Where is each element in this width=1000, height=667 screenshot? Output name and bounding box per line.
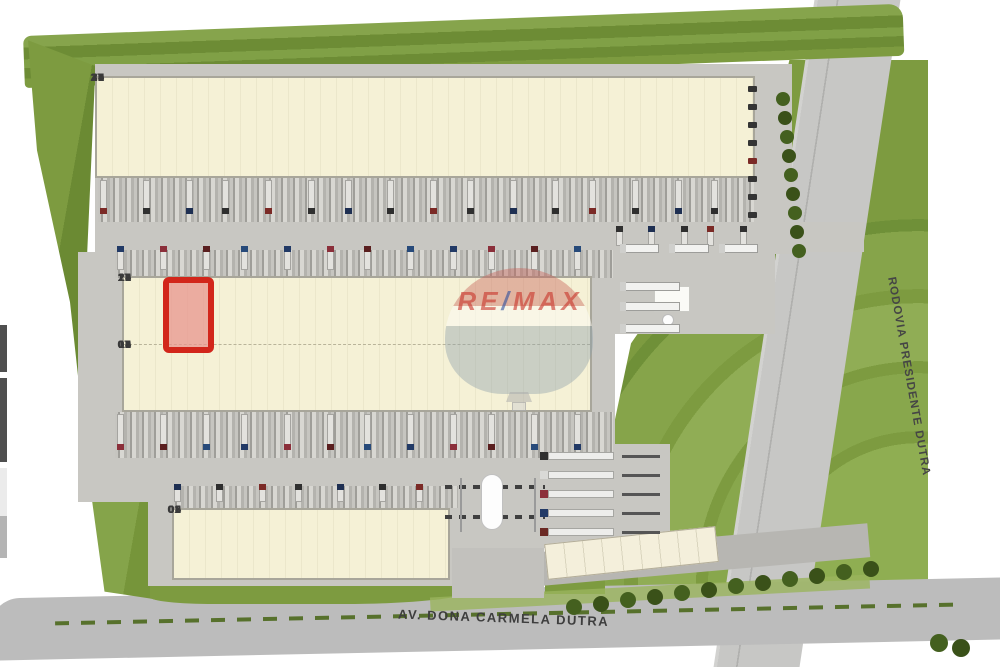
truck-cab: [675, 208, 682, 214]
truck-cab: [284, 246, 291, 252]
truck-cab: [540, 490, 548, 498]
truck: [620, 324, 680, 333]
truck: [620, 302, 680, 311]
truck: [616, 226, 623, 246]
remax-wordmark-max: MAX: [513, 286, 583, 316]
truck: [337, 484, 344, 502]
truck-cab: [620, 302, 626, 311]
left-edge-bar: [0, 516, 7, 558]
truck-cab: [616, 226, 623, 232]
left-edge-bar: [0, 468, 7, 516]
truck-cab: [143, 208, 150, 214]
truck-cab: [648, 226, 655, 232]
truck-cab: [620, 324, 626, 333]
truck-cab: [574, 444, 581, 450]
truck-cab: [379, 484, 386, 490]
truck-cab: [407, 246, 414, 252]
truck: [387, 180, 394, 214]
parking-marking: [622, 455, 660, 458]
truck-cab: [540, 528, 548, 536]
truck-cab: [552, 208, 559, 214]
truck-cab: [488, 246, 495, 252]
tree-icon: [863, 561, 879, 577]
truck: [222, 180, 229, 214]
tree-icon: [593, 596, 609, 612]
truck: [416, 484, 423, 502]
truck-cab: [364, 246, 371, 252]
car: [748, 86, 757, 92]
truck-cab: [574, 246, 581, 252]
truck-cab: [707, 226, 714, 232]
tree-icon: [620, 592, 636, 608]
truck-cab: [265, 208, 272, 214]
tree-icon: [809, 568, 825, 584]
truck: [100, 180, 107, 214]
truck-cab: [327, 444, 334, 450]
tree-icon: [792, 244, 806, 258]
truck: [117, 246, 124, 270]
remax-balloon-basket: [512, 402, 526, 411]
truck-cab: [632, 208, 639, 214]
truck-cab: [430, 208, 437, 214]
truck-cab: [203, 246, 210, 252]
truck: [216, 484, 223, 502]
truck: [467, 180, 474, 214]
tree-icon: [782, 571, 798, 587]
remax-watermark: RE/MAX: [442, 262, 598, 420]
truck: [364, 414, 371, 450]
truck-cab: [488, 444, 495, 450]
truck-cab: [540, 452, 548, 460]
truck: [284, 414, 291, 450]
tree-icon: [790, 225, 804, 239]
truck-cab: [589, 208, 596, 214]
parking-marking: [622, 493, 660, 496]
truck-trailer: [548, 528, 614, 536]
remax-wordmark-slash: /: [502, 286, 513, 316]
truck-cab: [174, 484, 181, 490]
truck-cab: [669, 244, 675, 253]
truck-trailer: [548, 490, 614, 498]
truck-cab: [345, 208, 352, 214]
truck: [203, 246, 210, 270]
truck-cab: [450, 246, 457, 252]
car: [748, 212, 757, 218]
truck: [510, 180, 517, 214]
parking-marking: [622, 512, 660, 515]
truck-cab: [100, 208, 107, 214]
car: [748, 122, 757, 128]
truck: [241, 246, 248, 270]
truck: [174, 484, 181, 502]
truck: [620, 244, 659, 253]
tree-icon: [788, 206, 802, 220]
tree-icon: [674, 585, 690, 601]
truck-cab: [160, 246, 167, 252]
left-edge-bar: [0, 378, 7, 462]
truck-cab: [216, 484, 223, 490]
truck-cab: [117, 444, 124, 450]
tree-icon: [786, 187, 800, 201]
truck-cab: [531, 246, 538, 252]
truck-cab: [620, 282, 626, 291]
truck-cab: [416, 484, 423, 490]
truck-cab: [222, 208, 229, 214]
truck: [707, 226, 714, 246]
truck-cab: [327, 246, 334, 252]
truck: [669, 244, 708, 253]
remax-wordmark-re: RE: [457, 286, 501, 316]
truck-trailer: [548, 509, 614, 517]
highlighted-unit-box: [163, 277, 214, 353]
tree-icon: [952, 639, 970, 657]
parking-marking: [622, 531, 660, 534]
truck: [364, 246, 371, 270]
truck-cab: [387, 208, 394, 214]
tree-icon: [755, 575, 771, 591]
site-plan-canvas: 2728293031323334353637383940 17181920212…: [0, 0, 1000, 667]
remax-balloon-neck: [506, 392, 532, 402]
truck: [308, 180, 315, 214]
truck: [265, 180, 272, 214]
truck: [284, 246, 291, 270]
truck-cab: [407, 444, 414, 450]
truck: [327, 246, 334, 270]
truck: [160, 414, 167, 450]
truck-cab: [540, 509, 548, 517]
car: [748, 140, 757, 146]
truck: [379, 484, 386, 502]
truck: [648, 226, 655, 246]
truck-cab: [203, 444, 210, 450]
truck: [711, 180, 718, 214]
truck: [740, 226, 747, 246]
truck-cab: [241, 444, 248, 450]
truck: [589, 180, 596, 214]
truck-cab: [160, 444, 167, 450]
truck-cab: [308, 208, 315, 214]
tree-icon: [778, 111, 792, 125]
truck-cab: [117, 246, 124, 252]
truck: [160, 246, 167, 270]
truck-cab: [740, 226, 747, 232]
tree-icon: [780, 130, 794, 144]
truck-cab: [186, 208, 193, 214]
truck-cab: [364, 444, 371, 450]
truck-cab: [681, 226, 688, 232]
truck: [632, 180, 639, 214]
tree-icon: [836, 564, 852, 580]
truck: [295, 484, 302, 502]
remax-wordmark: RE/MAX: [442, 286, 598, 317]
tree-icon: [930, 634, 948, 652]
truck: [407, 246, 414, 270]
truck-cab: [620, 244, 626, 253]
truck: [203, 414, 210, 450]
truck-cab: [241, 246, 248, 252]
truck: [259, 484, 266, 502]
truck-cab: [719, 244, 725, 253]
truck: [675, 180, 682, 214]
tree-icon: [647, 589, 663, 605]
truck-cab: [450, 444, 457, 450]
parking-marking: [622, 474, 660, 477]
truck: [327, 414, 334, 450]
truck-trailer: [548, 471, 614, 479]
car: [748, 158, 757, 164]
car: [748, 176, 757, 182]
truck: [681, 226, 688, 246]
car: [748, 194, 757, 200]
tree-icon: [784, 168, 798, 182]
car: [748, 104, 757, 110]
truck: [143, 180, 150, 214]
truck-cab: [259, 484, 266, 490]
truck: [186, 180, 193, 214]
truck: [345, 180, 352, 214]
tree-icon: [701, 582, 717, 598]
truck-cab: [510, 208, 517, 214]
truck: [620, 282, 680, 291]
truck-cab: [295, 484, 302, 490]
truck: [117, 414, 124, 450]
truck-cab: [467, 208, 474, 214]
truck: [241, 414, 248, 450]
truck-cab: [531, 444, 538, 450]
truck: [430, 180, 437, 214]
truck-cab: [337, 484, 344, 490]
truck-cab: [284, 444, 291, 450]
left-edge-bar: [0, 325, 7, 372]
tree-icon: [782, 149, 796, 163]
tree-icon: [728, 578, 744, 594]
truck-cab: [711, 208, 718, 214]
truck-cab: [540, 471, 548, 479]
truck: [719, 244, 758, 253]
truck-trailer: [548, 452, 614, 460]
truck: [552, 180, 559, 214]
tree-icon: [776, 92, 790, 106]
truck: [407, 414, 414, 450]
